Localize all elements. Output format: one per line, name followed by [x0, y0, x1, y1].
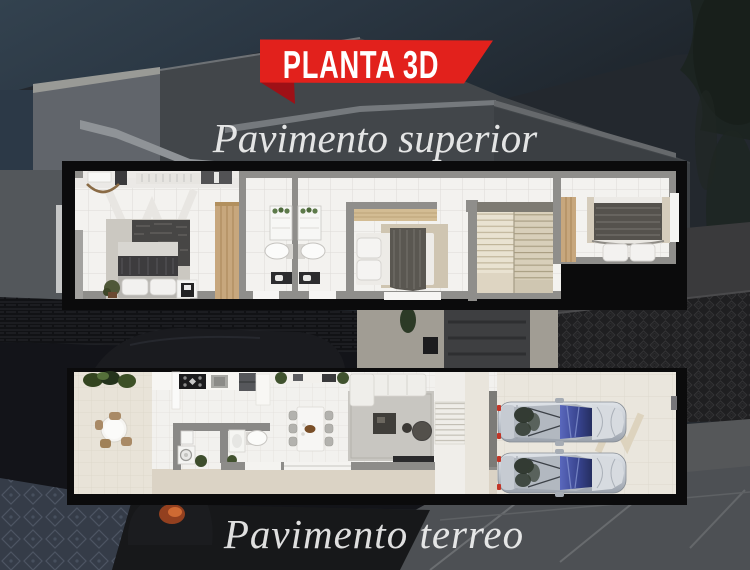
svg-text:Pavimento superior: Pavimento superior	[212, 115, 539, 161]
svg-text:Pavimento terreo: Pavimento terreo	[223, 511, 524, 557]
svg-text:PLANTA 3D: PLANTA 3D	[283, 44, 439, 87]
